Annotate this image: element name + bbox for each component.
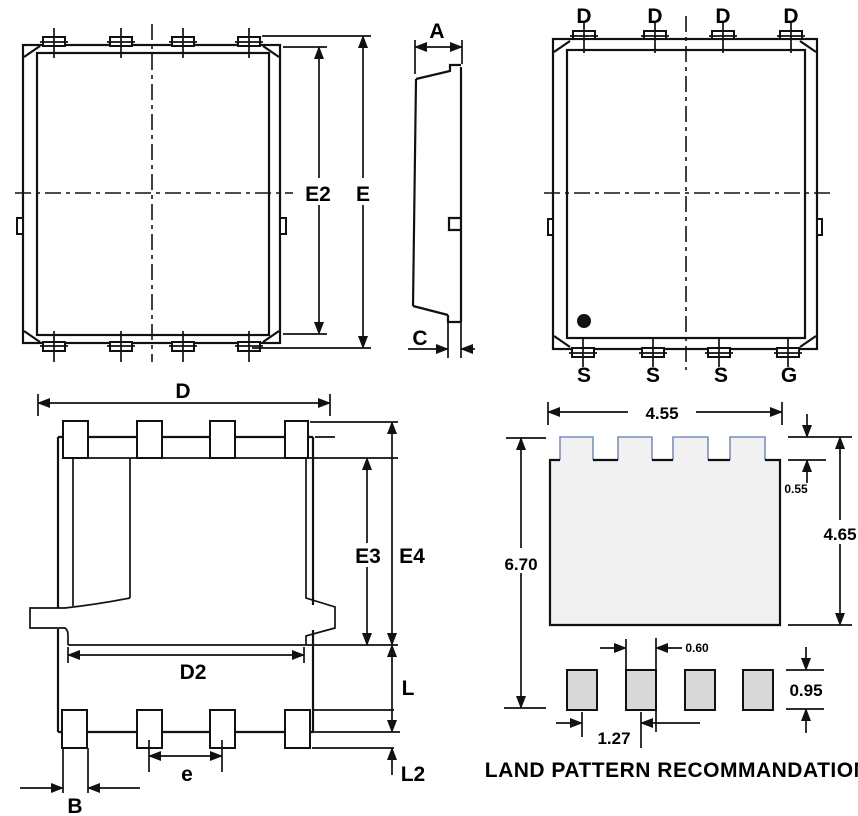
dimension-l: L — [392, 645, 415, 732]
dimension-b: B — [20, 748, 140, 816]
dim-label-0-95: 0.95 — [789, 681, 822, 700]
top-view: E2 E — [15, 24, 377, 362]
bottom-view-body — [58, 437, 313, 732]
land-pad-tab — [730, 437, 765, 460]
land-small-pad — [567, 670, 597, 710]
dim-label-4-65: 4.65 — [823, 525, 856, 544]
dim-label-l2: L2 — [401, 763, 426, 786]
land-pad-tab — [673, 437, 708, 460]
dim-label-e-pitch: e — [181, 763, 193, 786]
lead — [137, 421, 162, 458]
dim-label-a: A — [429, 20, 444, 43]
dim-label-e2: E2 — [305, 183, 331, 206]
dim-label-e: E — [356, 183, 370, 206]
pin-label-d3: D — [715, 5, 730, 28]
land-small-pad — [626, 670, 656, 710]
bottom-view-exposed-pad — [30, 458, 398, 645]
land-pad-fill — [550, 460, 780, 625]
land-pattern: 4.55 6.70 0.55 4.65 0.60 — [485, 399, 858, 782]
pin-label-g: G — [781, 364, 797, 387]
dim-label-b: B — [67, 795, 82, 816]
dimension-e2: E2 — [283, 47, 336, 334]
dim-label-0-60: 0.60 — [685, 641, 709, 655]
lead — [210, 421, 235, 458]
dim-label-4-55: 4.55 — [645, 404, 678, 423]
pinout-body-outline — [553, 39, 817, 349]
dim-label-c: C — [412, 327, 427, 350]
side-tab — [280, 218, 286, 234]
pin-label-d2: D — [647, 5, 662, 28]
dim-label-e4: E4 — [399, 545, 425, 568]
pinout-bottom-labels: S S S G — [577, 364, 797, 387]
land-small-pad — [743, 670, 773, 710]
dim-label-6-70: 6.70 — [504, 555, 537, 574]
pin-label-s2: S — [646, 364, 660, 387]
lead — [63, 421, 88, 458]
side-tab — [817, 219, 822, 235]
dimension-d2: D2 — [68, 647, 304, 684]
lead — [285, 710, 310, 748]
right-extension-lines — [310, 422, 400, 748]
dim-label-e3: E3 — [355, 545, 381, 568]
pin-label-d4: D — [783, 5, 798, 28]
dimension-e3: E3 — [351, 458, 384, 645]
dimension-1-27: 1.27 — [556, 712, 700, 748]
dim-label-d: D — [175, 380, 190, 403]
dimension-6-70: 6.70 — [496, 438, 546, 708]
land-pad-tab — [560, 437, 593, 460]
dim-label-1-27: 1.27 — [597, 729, 630, 748]
land-pattern-title: LAND PATTERN RECOMMANDATION — [485, 759, 858, 782]
dim-label-d2: D2 — [180, 661, 207, 684]
lead — [62, 710, 87, 748]
dimension-l2: L2 — [392, 748, 425, 786]
pinout-top-leads — [570, 22, 805, 53]
lead — [285, 421, 308, 458]
dimension-0-95: 0.95 — [786, 647, 824, 733]
pin-label-d1: D — [576, 5, 591, 28]
dim-label-l: L — [402, 677, 415, 700]
dimension-4-65: 4.65 — [788, 437, 858, 625]
land-small-pads — [567, 670, 773, 710]
dimension-e4: E4 — [392, 422, 427, 645]
package-outline-drawing: E2 E A C — [0, 0, 858, 816]
side-view: A C — [408, 20, 475, 358]
bottom-view: D D2 E3 E4 L — [20, 380, 427, 816]
dimension-0-55: 0.55 — [784, 414, 852, 496]
land-small-pad — [685, 670, 715, 710]
side-view-body — [413, 65, 461, 322]
dim-label-0-55: 0.55 — [784, 482, 808, 496]
land-pad-tab — [618, 437, 652, 460]
side-tab — [548, 219, 553, 235]
top-view-centerlines — [15, 24, 293, 362]
pinout-view: D D D D S S S G — [544, 5, 834, 387]
dimension-4-55: 4.55 — [548, 399, 782, 425]
pinout-top-labels: D D D D — [576, 5, 798, 28]
land-pad-tabs — [560, 437, 765, 460]
drawing-canvas: E2 E A C — [0, 0, 858, 816]
dimension-c: C — [408, 322, 475, 358]
dimension-d: D — [38, 380, 330, 416]
side-tab — [17, 218, 23, 234]
pin-label-s1: S — [577, 364, 591, 387]
pinout-side-tabs — [548, 219, 822, 235]
bottom-view-bottom-leads — [62, 710, 310, 748]
bottom-view-top-leads — [63, 421, 308, 458]
pin-label-s3: S — [714, 364, 728, 387]
pin1-indicator-dot — [577, 314, 591, 328]
